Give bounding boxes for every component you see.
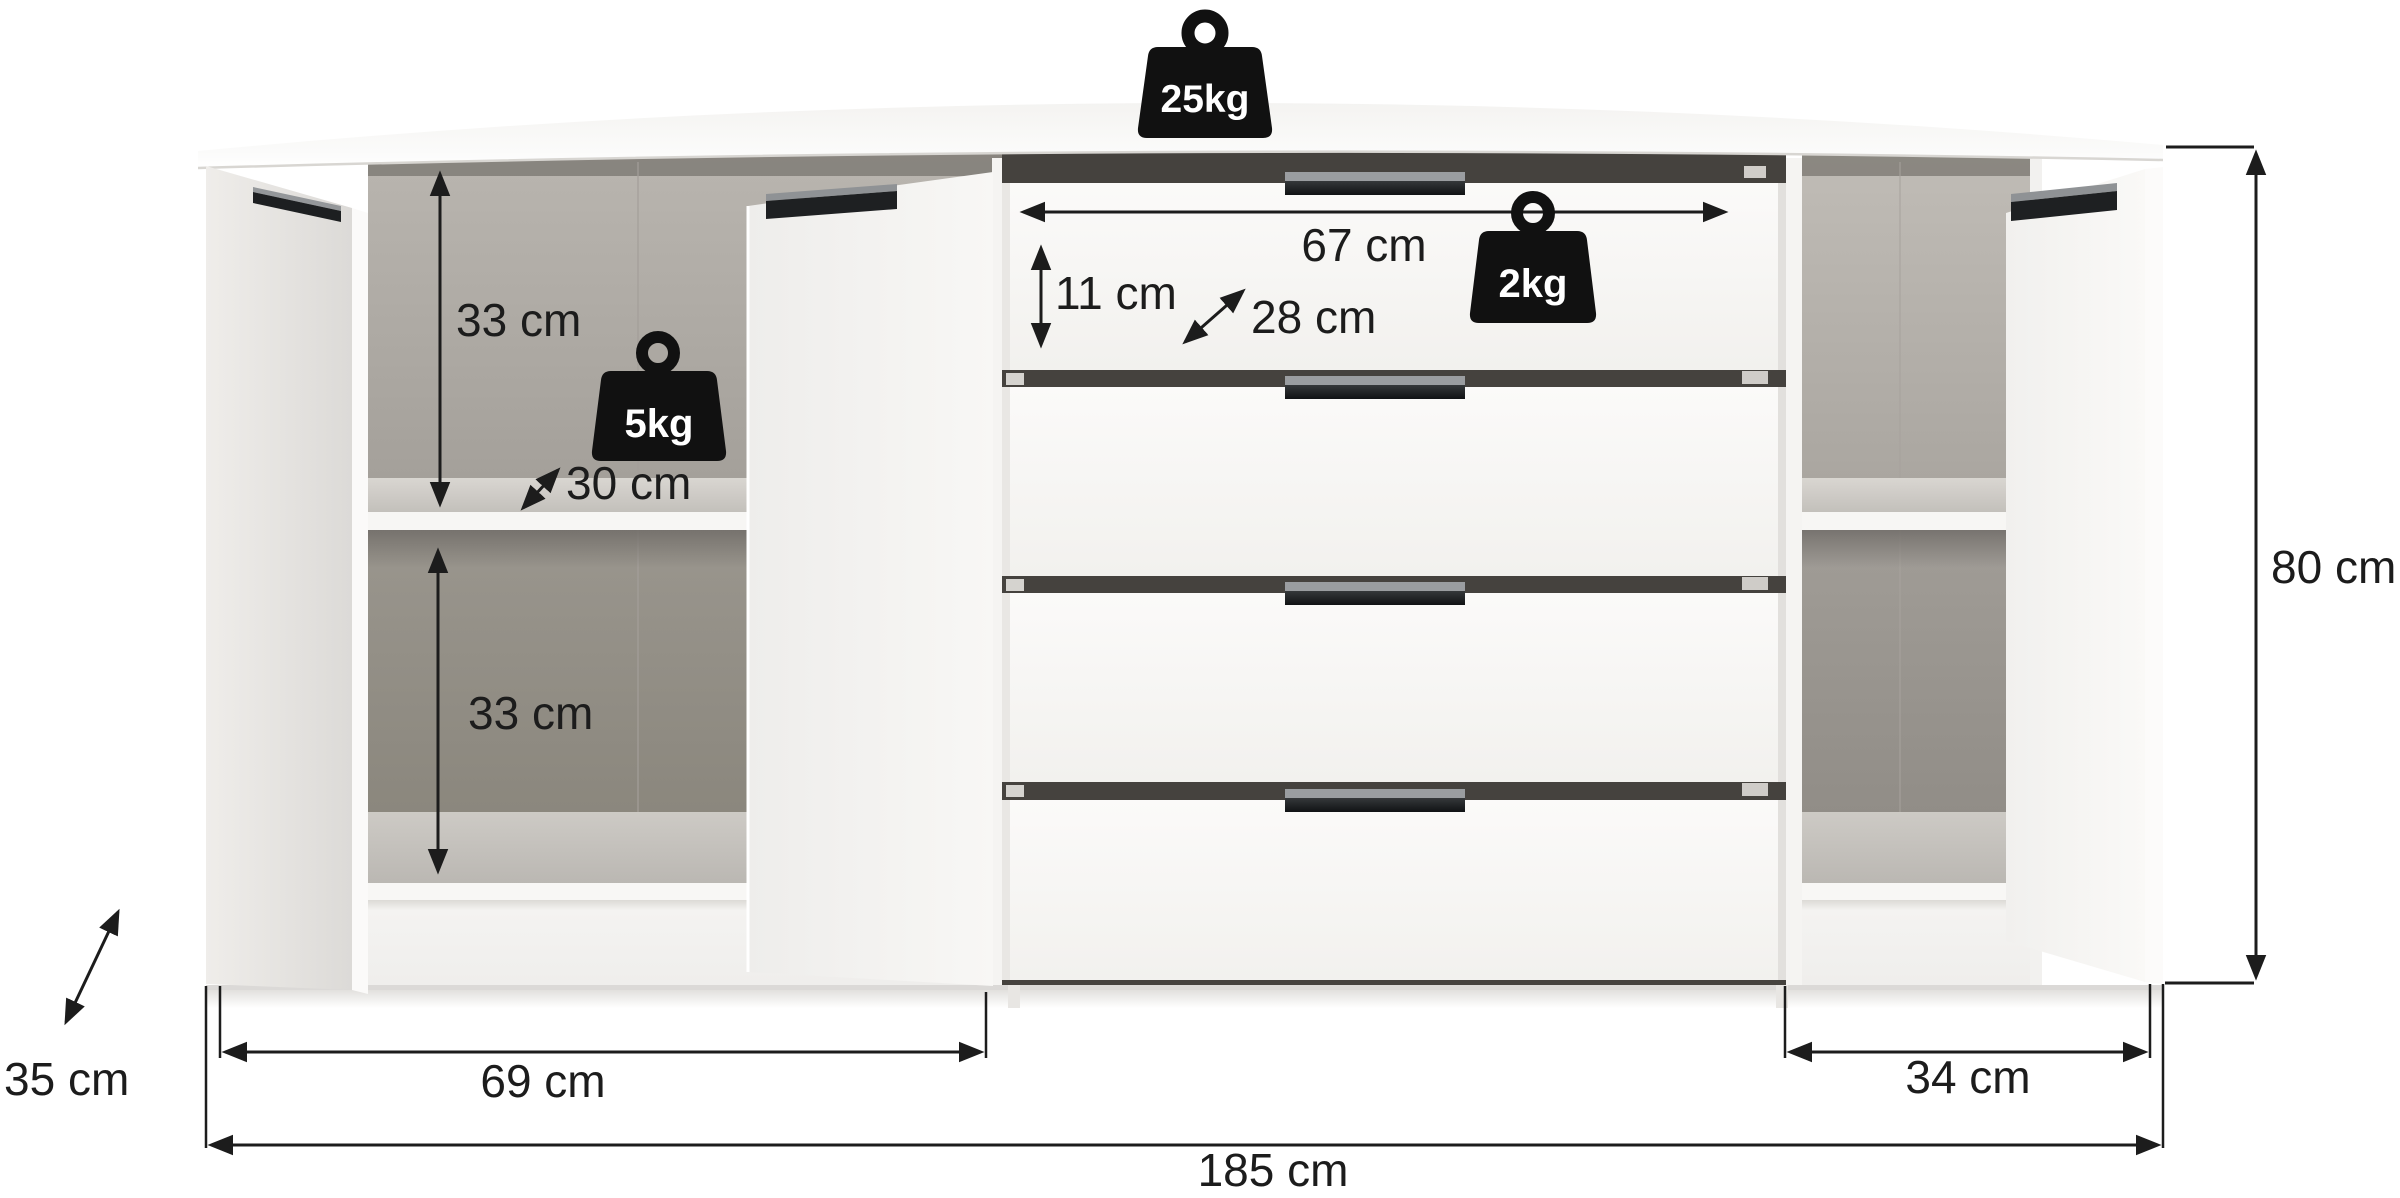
drawer-4-front: [1002, 800, 1786, 980]
dim-arrow-total-depth: [66, 912, 118, 1022]
drawer-slide-rail: [1742, 783, 1768, 796]
drawer-2-handle-top: [1285, 376, 1465, 385]
drawer-slide-rail: [1742, 577, 1768, 590]
drawer-slide-rail: [1742, 371, 1768, 384]
weight-label-shelf: 5kg: [625, 402, 694, 446]
drawer-3: [1002, 582, 1786, 782]
drawer-4-right-shade: [1778, 800, 1786, 980]
right-door-open: [2006, 167, 2163, 984]
dim-label-total-depth: 35 cm: [4, 1053, 129, 1105]
shelf-top-surface: [1802, 478, 2030, 512]
dim-label-lower-compartment-height: 33 cm: [468, 687, 593, 739]
drawer-3-left-shade: [1002, 593, 1010, 782]
drawer-4-handle-top: [1285, 789, 1465, 798]
cabinet: [198, 103, 2163, 1008]
drawer-2-left-shade: [1002, 387, 1010, 576]
right-plinth: [1802, 900, 2030, 985]
left-door-edge: [352, 208, 368, 994]
right-compartment-floor: [1802, 812, 2030, 885]
middle-door-open: [748, 172, 993, 986]
drawer-2-front: [1002, 387, 1786, 576]
dim-label-left-section-width: 69 cm: [480, 1055, 605, 1107]
dim-label-upper-compartment-height: 33 cm: [456, 294, 581, 346]
drawer-1-left-shade: [1002, 183, 1010, 370]
sideboard-dimension-diagram: 33 cm 33 cm 30 cm 67 cm 11 cm 28 cm 35 c…: [0, 0, 2400, 1198]
shelf-front-edge: [1802, 512, 2030, 530]
product-dimension-image: 33 cm 33 cm 30 cm 67 cm 11 cm 28 cm 35 c…: [0, 0, 2400, 1198]
right-floor-front-edge: [1802, 883, 2030, 900]
drawer-2-right-shade: [1778, 387, 1786, 576]
drawer-3-front: [1002, 593, 1786, 782]
drawer-3-handle: [1285, 591, 1465, 605]
drawer-4-left-shade: [1002, 800, 1010, 980]
drawer-1-handle-top: [1285, 172, 1465, 181]
cabinet-foot: [1008, 985, 1020, 1008]
drawer-1-right-shade: [1778, 183, 1786, 370]
right-compartment-back-upper: [1802, 140, 2030, 512]
weight-ring-icon: [1188, 16, 1222, 50]
dim-label-shelf-depth: 30 cm: [566, 457, 691, 509]
drawer-2-handle: [1285, 385, 1465, 399]
drawer-3-handle-top: [1285, 582, 1465, 591]
right-compartment: [1802, 140, 2030, 985]
weight-label-top-panel: 25kg: [1161, 78, 1250, 121]
left-door-open: [206, 166, 368, 994]
drawer-slide-rail: [1006, 373, 1024, 385]
dim-label-drawer-height: 11 cm: [1055, 267, 1177, 319]
cabinet-bottom-edge: [206, 985, 2163, 990]
middle-door-panel: [748, 172, 993, 986]
drawer-3-right-shade: [1778, 593, 1786, 782]
shelf-under-shadow: [1802, 530, 2030, 568]
right-door-panel: [2006, 169, 2145, 982]
divider-right-of-drawers: [1786, 158, 1802, 985]
drawer-4-handle: [1285, 798, 1465, 812]
weight-label-drawer: 2kg: [1499, 262, 1568, 306]
dim-label-total-width: 185 cm: [1198, 1144, 1349, 1196]
dim-label-total-height: 80 cm: [2271, 541, 2396, 593]
dim-label-drawer-depth: 28 cm: [1251, 291, 1376, 343]
floor-shadow: [206, 990, 2163, 1008]
left-door-panel: [206, 166, 352, 990]
drawer-slide-rail: [1744, 166, 1766, 178]
right-door-edge: [2145, 167, 2163, 984]
drawer-slide-rail: [1006, 579, 1024, 591]
weight-icon-25kg: 25kg: [1138, 16, 1272, 138]
drawer-1-handle: [1285, 181, 1465, 195]
drawer-4: [1002, 789, 1786, 980]
dim-label-right-section-width: 34 cm: [1905, 1051, 2030, 1103]
drawer-slide-rail: [1006, 785, 1024, 797]
drawer-2: [1002, 376, 1786, 576]
dim-label-drawer-width: 67 cm: [1301, 219, 1426, 271]
